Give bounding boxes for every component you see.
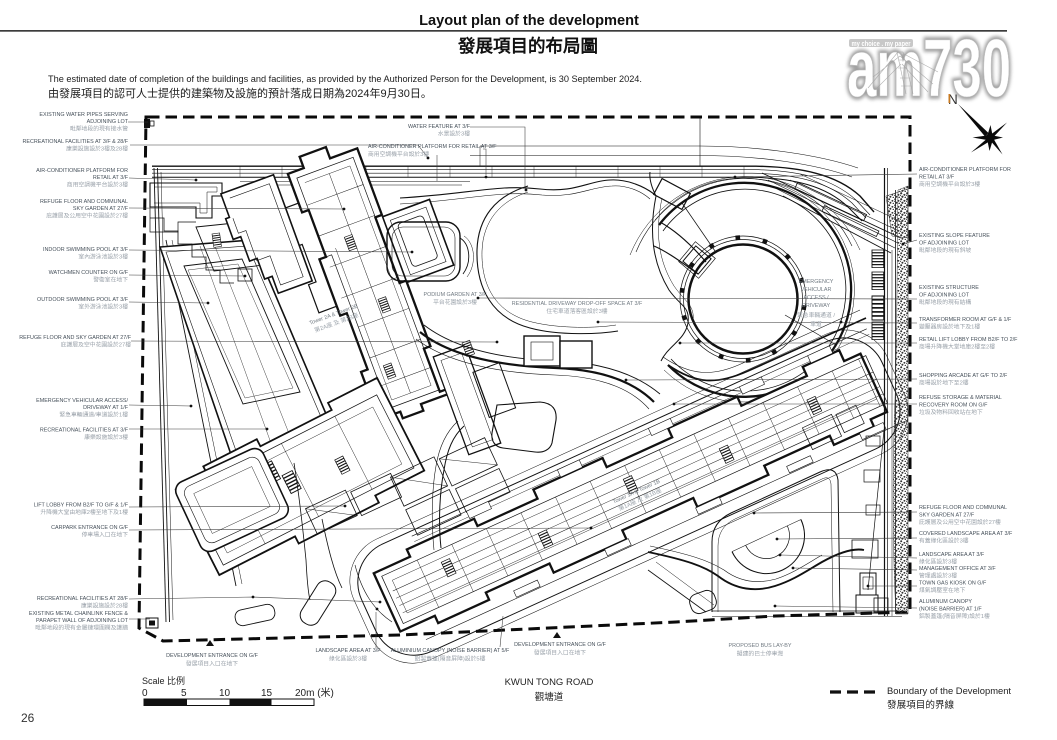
svg-text:室外游泳池設於3樓: 室外游泳池設於3樓	[78, 303, 128, 311]
svg-text:WATER FEATURE AT 3/F: WATER FEATURE AT 3/F	[408, 124, 471, 130]
svg-text:MANAGEMENT OFFICE AT 3/F: MANAGEMENT OFFICE AT 3/F	[919, 566, 996, 572]
svg-text:DRIVEWAY AT 1/F: DRIVEWAY AT 1/F	[83, 405, 129, 411]
svg-text:LANDSCAPE AREA AT 3/F: LANDSCAPE AREA AT 3/F	[919, 552, 985, 558]
svg-text:TOWN GAS KIOSK ON G/F: TOWN GAS KIOSK ON G/F	[919, 581, 987, 587]
svg-text:康樂設施設於28樓: 康樂設施設於28樓	[81, 602, 128, 610]
svg-text:TRANSFORMER ROOM AT G/F & 1/F: TRANSFORMER ROOM AT G/F & 1/F	[919, 317, 1012, 323]
svg-text:ADJOINING LOT: ADJOINING LOT	[87, 119, 129, 125]
svg-text:警衛室在地下: 警衛室在地下	[93, 276, 128, 284]
svg-text:WATCHMEN COUNTER ON G/F: WATCHMEN COUNTER ON G/F	[49, 270, 129, 276]
svg-text:Layout plan of the development: Layout plan of the development	[419, 13, 639, 29]
svg-text:REFUGE FLOOR AND COMMUNAL: REFUGE FLOOR AND COMMUNAL	[40, 199, 128, 205]
svg-text:EXISTING WATER PIPES SERVING: EXISTING WATER PIPES SERVING	[39, 112, 128, 118]
svg-text:AIR-CONDITIONER PLATFORM FOR: AIR-CONDITIONER PLATFORM FOR	[36, 168, 128, 174]
svg-text:水景設於3樓: 水景設於3樓	[438, 130, 470, 138]
svg-text:平台花園設於3樓: 平台花園設於3樓	[433, 298, 477, 306]
svg-text:SKY GARDEN AT 27/F: SKY GARDEN AT 27/F	[919, 513, 975, 519]
svg-text:鋁製蓋篷(隔音屏障)設於1樓: 鋁製蓋篷(隔音屏障)設於1樓	[919, 612, 990, 620]
svg-text:發展項目的界線: 發展項目的界線	[887, 699, 955, 711]
svg-text:DEVELOPMENT ENTRANCE ON G/F: DEVELOPMENT ENTRANCE ON G/F	[514, 642, 607, 648]
svg-text:毗鄰地段的現有金屬鏈環圍欄及護牆: 毗鄰地段的現有金屬鏈環圍欄及護牆	[35, 624, 128, 632]
svg-text:Boundary of the Development: Boundary of the Development	[887, 685, 1011, 696]
svg-text:有蓋綠化區設於3樓: 有蓋綠化區設於3樓	[919, 537, 969, 545]
svg-text:10: 10	[219, 688, 231, 699]
svg-text:DEVELOPMENT ENTRANCE ON G/F: DEVELOPMENT ENTRANCE ON G/F	[166, 653, 259, 659]
svg-text:RESIDENTIAL DRIVEWAY DROP-OFF: RESIDENTIAL DRIVEWAY DROP-OFF SPACE AT 3…	[512, 301, 643, 307]
svg-text:商用空調機平台設於3樓: 商用空調機平台設於3樓	[919, 180, 980, 188]
svg-text:毗鄰地段的現有接水管: 毗鄰地段的現有接水管	[70, 125, 128, 133]
svg-text:REFUGE FLOOR AND SKY GARDEN AT: REFUGE FLOOR AND SKY GARDEN AT 27/F	[19, 335, 131, 341]
svg-text:Scale 比例: Scale 比例	[142, 675, 185, 686]
svg-text:RECREATIONAL FACILITIES AT 3/F: RECREATIONAL FACILITIES AT 3/F & 28/F	[22, 139, 128, 145]
svg-text:REFUGE FLOOR AND COMMUNAL: REFUGE FLOOR AND COMMUNAL	[919, 505, 1007, 511]
svg-text:發展項目的布局圖: 發展項目的布局圖	[457, 36, 598, 56]
svg-text:商用空調機平台設於3樓: 商用空調機平台設於3樓	[67, 181, 128, 189]
svg-text:商用空調機平台設於3樓: 商用空調機平台設於3樓	[368, 150, 429, 158]
svg-text:RETAIL AT 3/F: RETAIL AT 3/F	[919, 175, 955, 181]
svg-text:VEHICULAR: VEHICULAR	[801, 287, 832, 293]
svg-text:OF ADJOINING LOT: OF ADJOINING LOT	[919, 241, 970, 247]
svg-text:發展項目入口在地下: 發展項目入口在地下	[534, 649, 586, 657]
svg-text:COVERED LANDSCAPE AREA AT 3/F: COVERED LANDSCAPE AREA AT 3/F	[919, 531, 1013, 537]
svg-text:EXISTING STRUCTURE: EXISTING STRUCTURE	[919, 285, 979, 291]
svg-text:OUTDOOR SWIMMING POOL AT 3/F: OUTDOOR SWIMMING POOL AT 3/F	[37, 297, 129, 303]
svg-text:LIFT LOBBY FROM B2/F TO G/F &: LIFT LOBBY FROM B2/F TO G/F & 1/F	[34, 503, 129, 509]
svg-text:PODIUM GARDEN AT 3/F: PODIUM GARDEN AT 3/F	[424, 292, 488, 298]
svg-text:毗鄰地段的現有斜坡: 毗鄰地段的現有斜坡	[919, 246, 971, 254]
svg-text:RECREATIONAL FACILITIES AT 3/F: RECREATIONAL FACILITIES AT 3/F	[40, 428, 129, 434]
svg-text:商場升降機大堂地庫2樓至2樓: 商場升降機大堂地庫2樓至2樓	[919, 343, 995, 351]
svg-text:SKY GARDEN AT 27/F: SKY GARDEN AT 27/F	[73, 206, 129, 212]
svg-text:住宅車道落客區設於3樓: 住宅車道落客區設於3樓	[546, 307, 607, 315]
svg-text:EMERGENCY VEHICULAR ACCESS/: EMERGENCY VEHICULAR ACCESS/	[36, 398, 128, 404]
svg-text:OF ADJOINING LOT: OF ADJOINING LOT	[919, 293, 970, 299]
svg-text:停車場入口在地下: 停車場入口在地下	[82, 531, 129, 539]
svg-text:觀塘道: 觀塘道	[535, 691, 564, 703]
svg-text:ALUMINIUM CANOPY (NOISE BARRIE: ALUMINIUM CANOPY (NOISE BARRIER) AT 5/F	[391, 648, 510, 654]
svg-text:EXISTING SLOPE FEATURE: EXISTING SLOPE FEATURE	[919, 233, 990, 239]
svg-text:20m (米): 20m (米)	[295, 686, 334, 699]
svg-text:EMERGENCY: EMERGENCY	[799, 279, 834, 285]
svg-text:ALUMINUM CANOPY: ALUMINUM CANOPY	[919, 599, 972, 605]
svg-text:26: 26	[21, 711, 35, 725]
svg-text:(NOISE BARRIER) AT 1/F: (NOISE BARRIER) AT 1/F	[919, 607, 982, 613]
svg-text:my choice . my paper: my choice . my paper	[852, 41, 911, 48]
svg-text:INDOOR SWIMMING POOL AT 3/F: INDOOR SWIMMING POOL AT 3/F	[43, 247, 129, 253]
svg-text:室內游泳池設於3樓: 室內游泳池設於3樓	[78, 253, 128, 261]
svg-text:5: 5	[181, 688, 187, 699]
svg-text:AIR-CONDITIONER PLATFORM FOR R: AIR-CONDITIONER PLATFORM FOR RETAIL AT 3…	[368, 144, 497, 150]
svg-text:發展項目入口在地下: 發展項目入口在地下	[186, 660, 238, 668]
svg-text:車道: 車道	[810, 320, 822, 328]
svg-text:毗鄰地段的現有結構: 毗鄰地段的現有結構	[919, 298, 971, 306]
svg-text:The estimated date of completi: The estimated date of completion of the …	[48, 74, 642, 84]
svg-text:15: 15	[261, 688, 273, 699]
svg-text:由發展項目的認可人士提供的建築物及設施的預計落成日期為202: 由發展項目的認可人士提供的建築物及設施的預計落成日期為2024年9月30日。	[48, 86, 432, 100]
svg-text:擬建的巴士停車灣: 擬建的巴士停車灣	[737, 650, 784, 658]
svg-text:升降機大堂由地庫2樓至地下及1樓: 升降機大堂由地庫2樓至地下及1樓	[40, 508, 128, 516]
svg-text:變壓器房設於地下及1樓: 變壓器房設於地下及1樓	[919, 323, 980, 331]
svg-text:緊急車輛通道 /: 緊急車輛通道 /	[797, 311, 835, 319]
svg-text:EXISTING METAL CHAINLINK FENCE: EXISTING METAL CHAINLINK FENCE &	[29, 611, 129, 617]
svg-text:綠化區設於3樓: 綠化區設於3樓	[329, 655, 367, 663]
svg-text:煤氣調壓室在地下: 煤氣調壓室在地下	[919, 586, 966, 594]
svg-text:管理處設於3樓: 管理處設於3樓	[919, 572, 957, 580]
svg-text:RETAIL LIFT LOBBY FROM B2/F TO: RETAIL LIFT LOBBY FROM B2/F TO 2/F	[919, 337, 1018, 343]
svg-text:SHOPPING ARCADE AT G/F TO 2/F: SHOPPING ARCADE AT G/F TO 2/F	[919, 373, 1008, 379]
svg-text:庇護層及公用空中花園設於27樓: 庇護層及公用空中花園設於27樓	[919, 518, 1001, 526]
svg-text:綠化區設於3樓: 綠化區設於3樓	[919, 558, 957, 566]
svg-text:AIR-CONDITIONER PLATFORM FOR: AIR-CONDITIONER PLATFORM FOR	[919, 167, 1011, 173]
svg-text:am730: am730	[847, 23, 1011, 114]
svg-text:鋁製蓋篷(隔音屏障)設於5樓: 鋁製蓋篷(隔音屏障)設於5樓	[415, 655, 486, 663]
svg-text:RETAIL AT 3/F: RETAIL AT 3/F	[93, 175, 129, 181]
svg-text:庇護層及空中花園設於27樓: 庇護層及空中花園設於27樓	[61, 341, 131, 349]
svg-text:商場設於地下至2樓: 商場設於地下至2樓	[919, 379, 969, 387]
svg-text:RECOVERY ROOM ON G/F: RECOVERY ROOM ON G/F	[919, 403, 988, 409]
svg-text:ACCESS /: ACCESS /	[803, 295, 829, 301]
svg-text:RECREATIONAL FACILITIES AT 28/: RECREATIONAL FACILITIES AT 28/F	[37, 596, 129, 602]
svg-text:庇護層及公用空中花園設於27樓: 庇護層及公用空中花園設於27樓	[46, 212, 128, 220]
svg-text:垃圾及物料回收站在地下: 垃圾及物料回收站在地下	[919, 408, 983, 416]
svg-text:REFUSE STORAGE & MATERIAL: REFUSE STORAGE & MATERIAL	[919, 395, 1002, 401]
svg-text:LANDSCAPE AREA AT 3/F: LANDSCAPE AREA AT 3/F	[315, 648, 381, 654]
svg-text:0: 0	[142, 688, 148, 699]
svg-text:PROPOSED BUS LAY-BY: PROPOSED BUS LAY-BY	[729, 643, 792, 649]
svg-text:康樂設施設於3樓及28樓: 康樂設施設於3樓及28樓	[66, 145, 128, 153]
svg-text:緊急車輛通道/車道設於1樓: 緊急車輛通道/車道設於1樓	[59, 411, 128, 419]
svg-text:KWUN TONG ROAD: KWUN TONG ROAD	[505, 677, 594, 688]
svg-text:康樂設施設於3樓: 康樂設施設於3樓	[84, 433, 128, 441]
svg-text:PARAPET WALL OF ADJOINING LOT: PARAPET WALL OF ADJOINING LOT	[36, 618, 129, 624]
svg-text:CARPARK ENTRANCE ON G/F: CARPARK ENTRANCE ON G/F	[51, 525, 129, 531]
svg-text:DRIVEWAY: DRIVEWAY	[802, 303, 831, 309]
